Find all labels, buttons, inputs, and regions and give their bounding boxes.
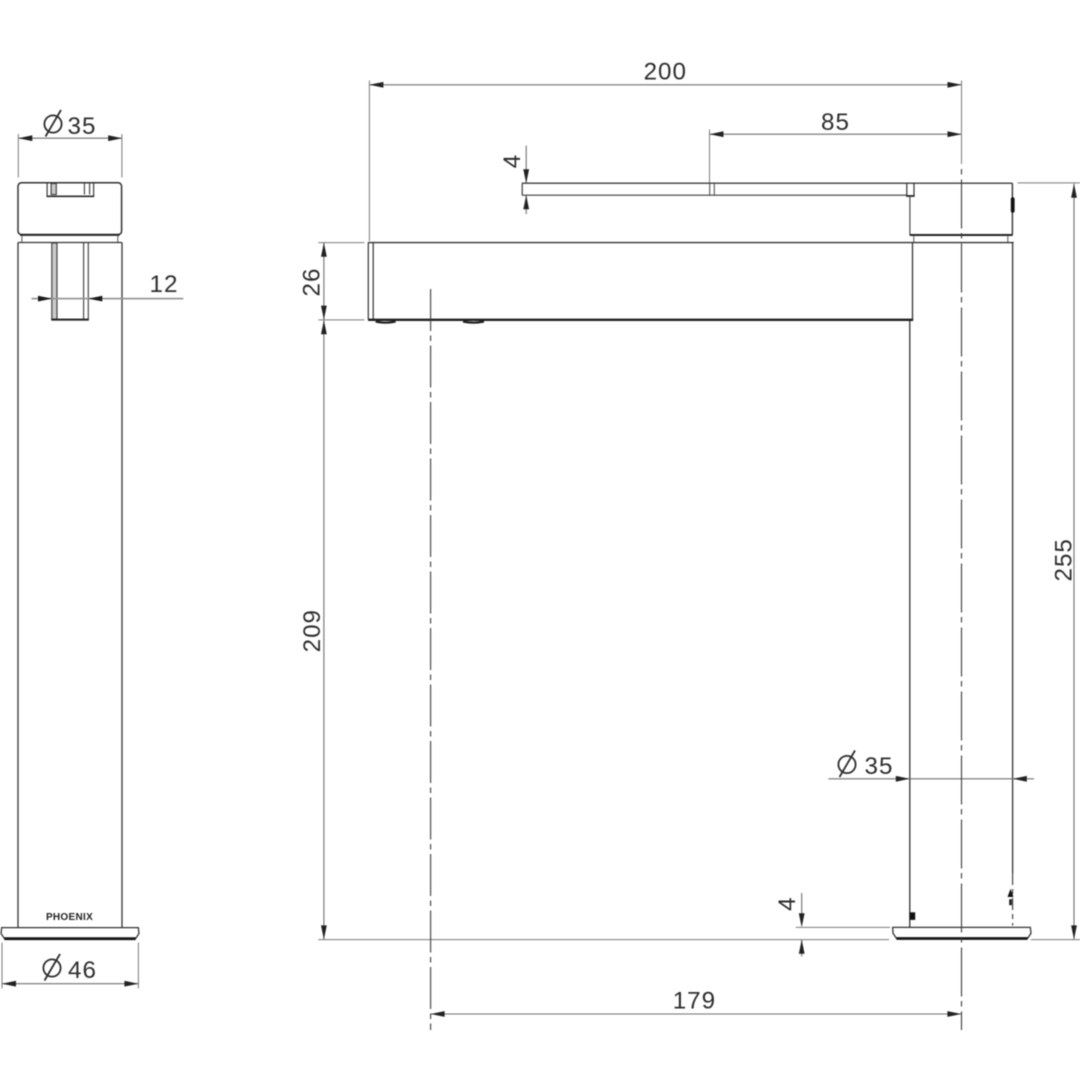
svg-text:255: 255 bbox=[1051, 538, 1078, 581]
svg-text:12: 12 bbox=[150, 271, 179, 298]
svg-text:85: 85 bbox=[821, 109, 850, 136]
svg-text:4: 4 bbox=[499, 154, 526, 168]
svg-text:46: 46 bbox=[68, 957, 97, 984]
svg-text:35: 35 bbox=[865, 753, 894, 780]
svg-text:35: 35 bbox=[68, 113, 97, 140]
svg-text:179: 179 bbox=[673, 988, 716, 1015]
svg-text:26: 26 bbox=[299, 268, 326, 297]
svg-text:209: 209 bbox=[299, 609, 326, 652]
svg-text:200: 200 bbox=[644, 59, 687, 86]
svg-text:PHOENIX: PHOENIX bbox=[46, 912, 93, 923]
svg-text:4: 4 bbox=[774, 896, 801, 910]
